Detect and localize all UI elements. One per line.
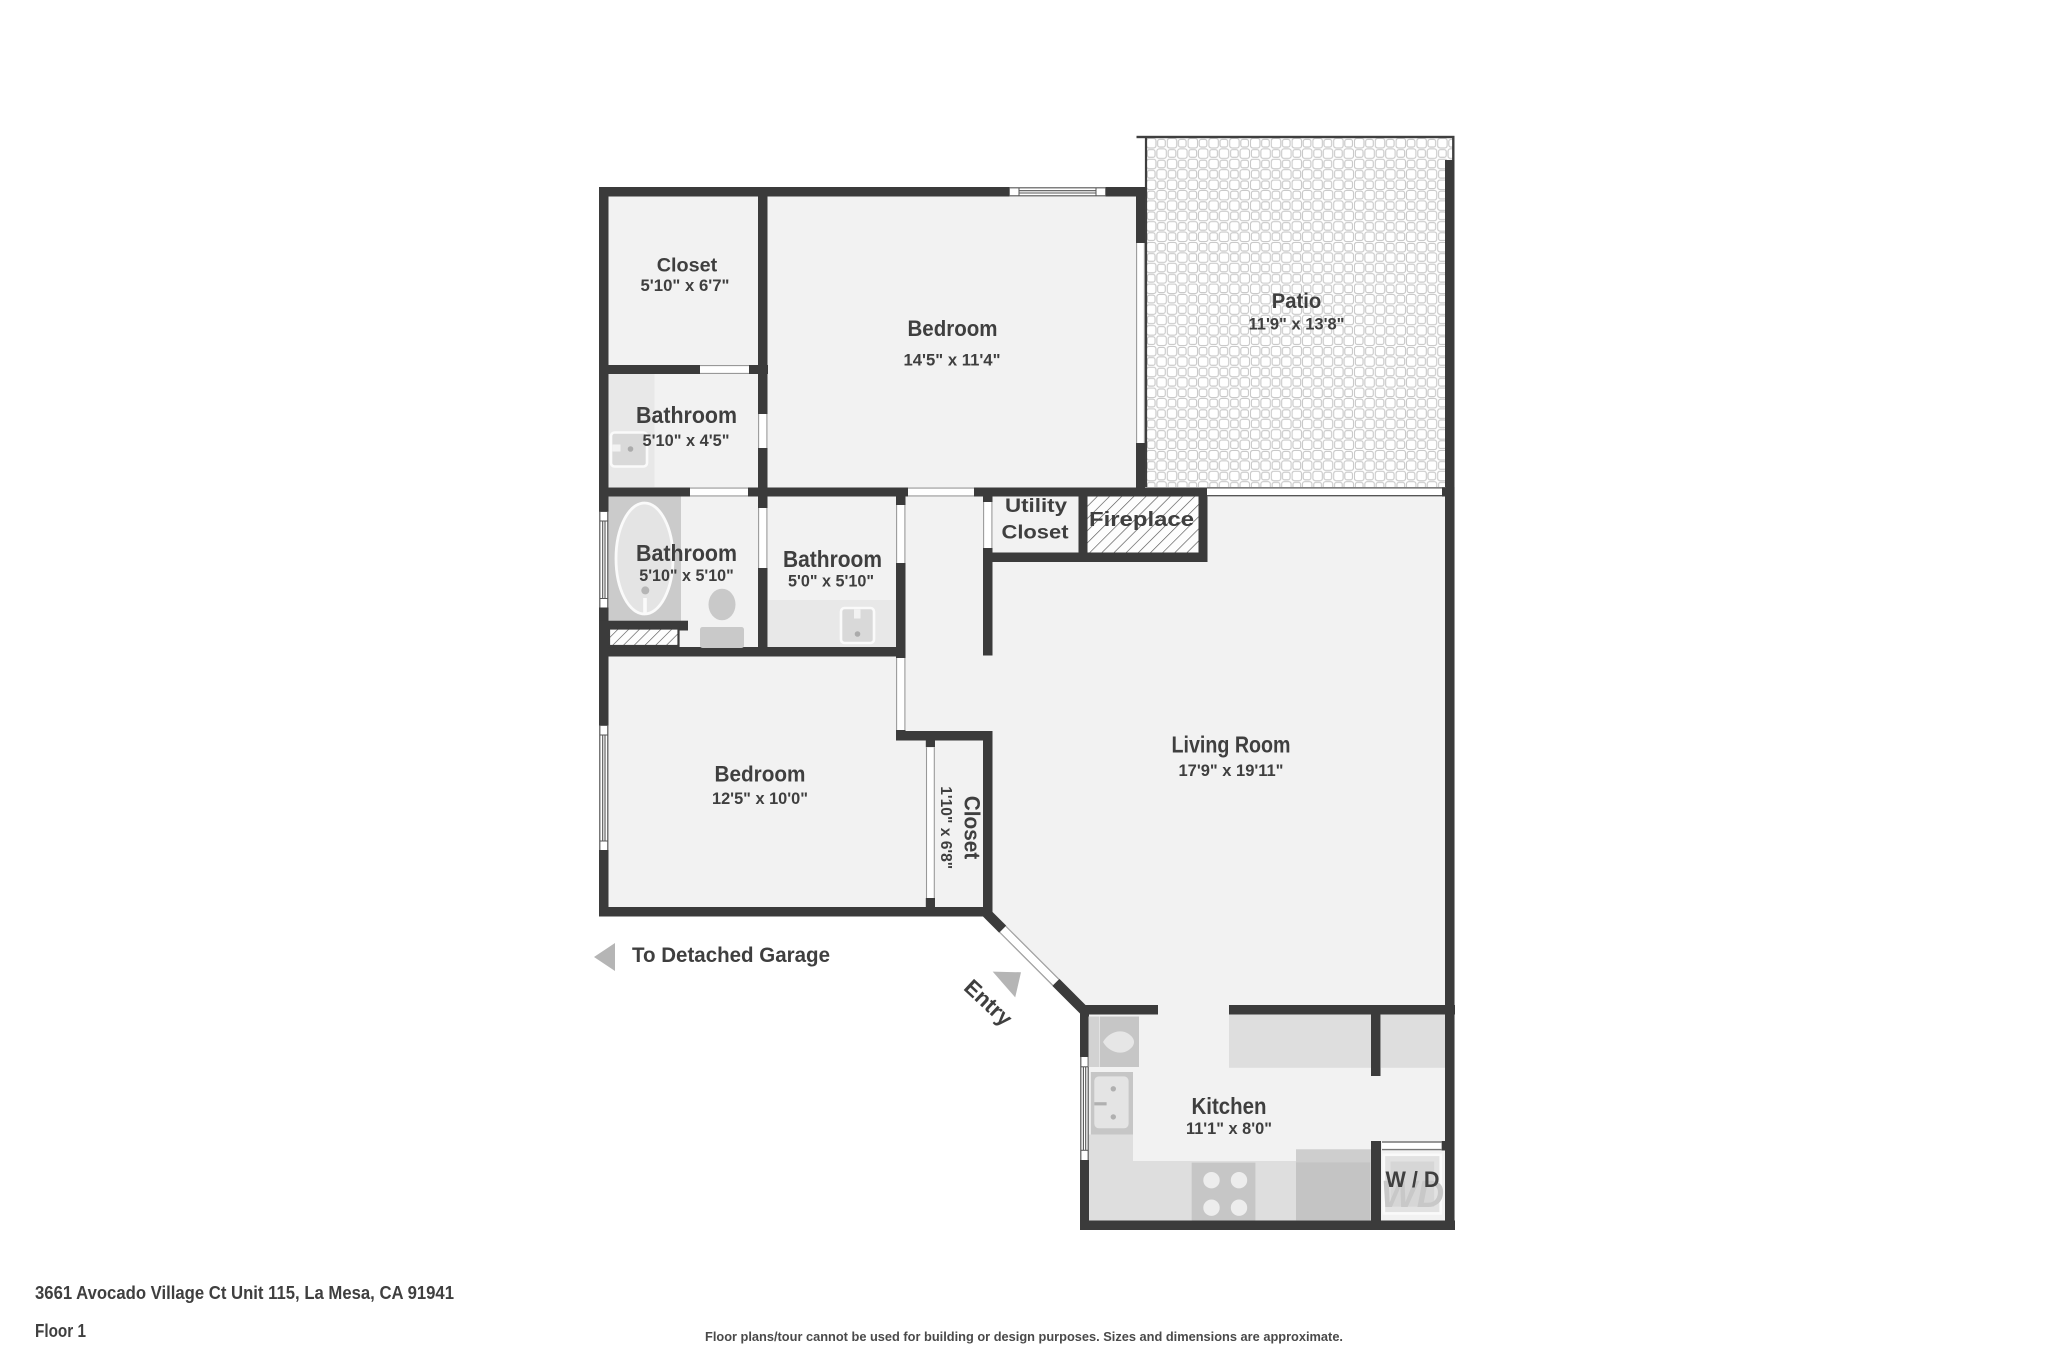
svg-text:14'5" x 11'4": 14'5" x 11'4" [904, 351, 1001, 370]
svg-text:Bedroom: Bedroom [715, 762, 806, 787]
svg-text:Floor 1: Floor 1 [35, 1321, 86, 1341]
svg-text:17'9" x 19'11": 17'9" x 19'11" [1179, 761, 1284, 780]
svg-text:Bathroom: Bathroom [783, 546, 882, 572]
svg-text:5'10" x 6'7": 5'10" x 6'7" [641, 277, 730, 295]
svg-text:1'10" x 6'8": 1'10" x 6'8" [937, 786, 954, 869]
svg-text:5'10" x 4'5": 5'10" x 4'5" [643, 431, 730, 450]
svg-text:5'10" x 5'10": 5'10" x 5'10" [639, 566, 734, 585]
svg-text:Fireplace: Fireplace [1089, 509, 1194, 531]
svg-text:W / D: W / D [1386, 1167, 1440, 1192]
svg-text:Patio: Patio [1272, 290, 1322, 313]
svg-text:Closet: Closet [1002, 523, 1070, 544]
svg-text:Utility: Utility [1005, 496, 1068, 517]
svg-text:Kitchen: Kitchen [1192, 1093, 1267, 1119]
svg-text:Bedroom: Bedroom [908, 316, 998, 341]
svg-text:Closet: Closet [960, 796, 985, 860]
svg-text:3661 Avocado Village Ct Unit 1: 3661 Avocado Village Ct Unit 115, La Mes… [35, 1283, 454, 1303]
svg-text:11'9" x 13'8": 11'9" x 13'8" [1249, 315, 1345, 334]
svg-text:Closet: Closet [657, 256, 718, 277]
svg-text:Bathroom: Bathroom [636, 402, 737, 428]
svg-text:5'0" x 5'10": 5'0" x 5'10" [788, 572, 874, 591]
svg-text:Living Room: Living Room [1172, 732, 1291, 758]
svg-text:To Detached Garage: To Detached Garage [632, 944, 830, 967]
svg-text:12'5" x 10'0": 12'5" x 10'0" [712, 789, 808, 808]
svg-text:Bathroom: Bathroom [636, 540, 737, 566]
svg-text:11'1" x 8'0": 11'1" x 8'0" [1186, 1119, 1272, 1138]
svg-text:Floor plans/tour cannot be use: Floor plans/tour cannot be used for buil… [705, 1329, 1343, 1344]
